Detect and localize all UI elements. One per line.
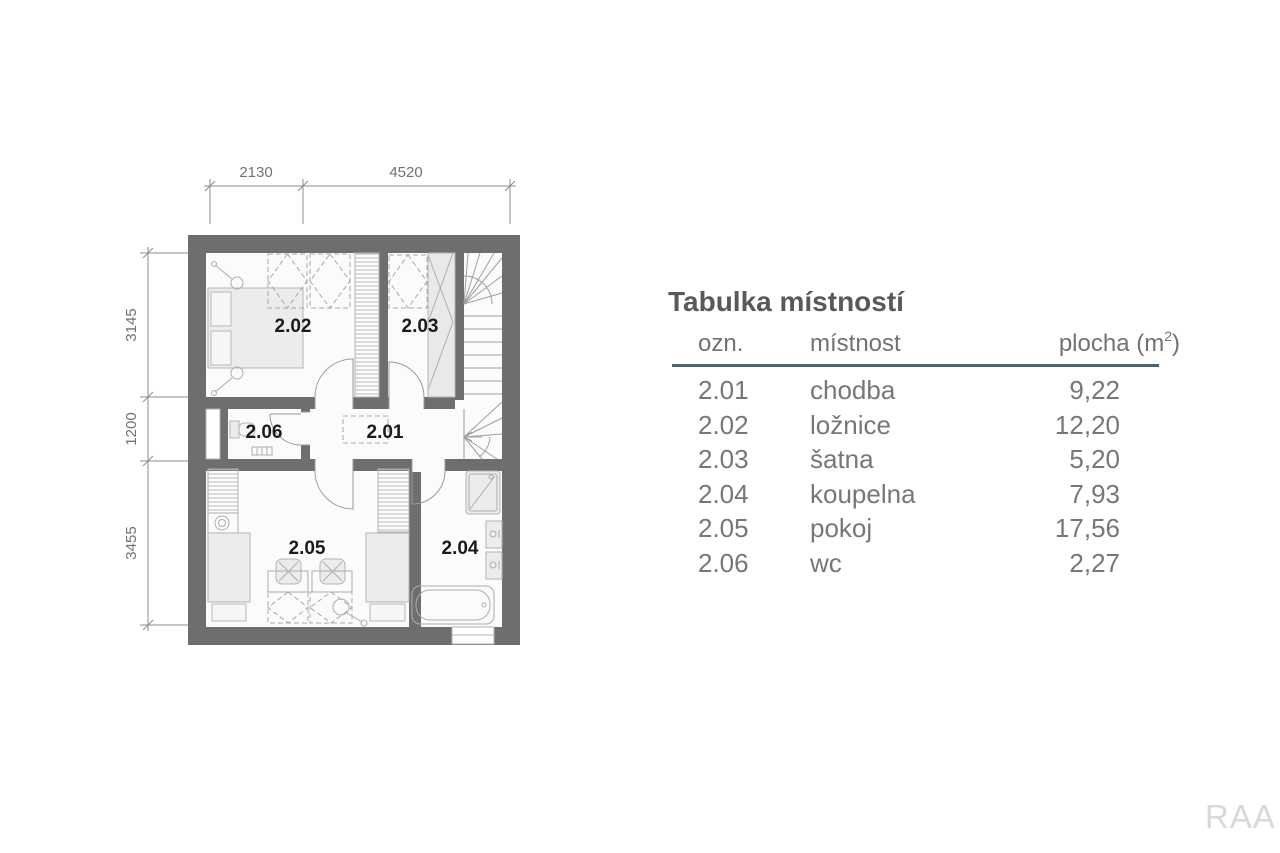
table-title: Tabulka místností [668,288,1180,316]
dim-top-1: 2130 [239,164,272,181]
dim-left-3: 3455 [123,526,140,559]
shower-symbol [466,471,500,514]
cell-plocha: 17,56 [980,511,1180,546]
cell-mistnost: wc [810,546,980,581]
cell-plocha: 7,93 [980,477,1180,512]
table-row: 2.06 wc 2,27 [668,546,1180,581]
cell-plocha: 9,22 [980,373,1180,408]
dimension-line-left: 3145 1200 3455 [123,247,188,631]
table-row: 2.04 koupelna 7,93 [668,477,1180,512]
cell-ozn: 2.03 [668,442,810,477]
table-body: 2.01 chodba 9,22 2.02 ložnice 12,20 2.03… [668,373,1180,580]
cell-mistnost: koupelna [810,477,980,512]
dimension-line-top: 2130 4520 [204,164,516,224]
header-mistnost: místnost [810,331,980,357]
table-row: 2.05 pokoj 17,56 [668,511,1180,546]
window-symbol [452,627,494,644]
cell-ozn: 2.02 [668,408,810,443]
header-ozn: ozn. [668,331,810,357]
room-label-2-06: 2.06 [246,422,283,443]
floor-plan: 2130 4520 3145 1200 3455 [0,0,620,720]
table-rule [672,364,1159,367]
header-plocha: plocha (m2) [980,330,1180,357]
cell-ozn: 2.06 [668,546,810,581]
table-row: 2.03 šatna 5,20 [668,442,1180,477]
dim-left-2: 1200 [123,412,140,445]
header-plocha-sup: 2 [1164,328,1172,344]
room-label-2-03: 2.03 [402,316,439,337]
cell-mistnost: ložnice [810,408,980,443]
cell-ozn: 2.04 [668,477,810,512]
room-table: Tabulka místností ozn. místnost plocha (… [668,288,1180,580]
dim-top-2: 4520 [389,164,422,181]
cell-ozn: 2.01 [668,373,810,408]
cell-mistnost: šatna [810,442,980,477]
cell-ozn: 2.05 [668,511,810,546]
bed-left-symbol [208,533,250,602]
room-label-2-04: 2.04 [442,538,479,559]
cell-plocha: 12,20 [980,408,1180,443]
room-label-2-01: 2.01 [367,422,404,443]
header-plocha-suffix: ) [1172,330,1180,357]
watermark: RAA [1205,798,1276,836]
room-label-2-05: 2.05 [289,538,326,559]
shaft [206,409,220,459]
cell-mistnost: chodba [810,373,980,408]
cell-mistnost: pokoj [810,511,980,546]
cell-plocha: 5,20 [980,442,1180,477]
header-plocha-prefix: plocha (m [1059,330,1164,357]
table-header: ozn. místnost plocha (m2) [668,330,1180,357]
bed-right-symbol [366,533,409,602]
cell-plocha: 2,27 [980,546,1180,581]
table-row: 2.02 ložnice 12,20 [668,408,1180,443]
table-row: 2.01 chodba 9,22 [668,373,1180,408]
room-label-2-02: 2.02 [275,316,312,337]
page: 2130 4520 3145 1200 3455 [0,0,1280,853]
dim-left-1: 3145 [123,308,140,341]
